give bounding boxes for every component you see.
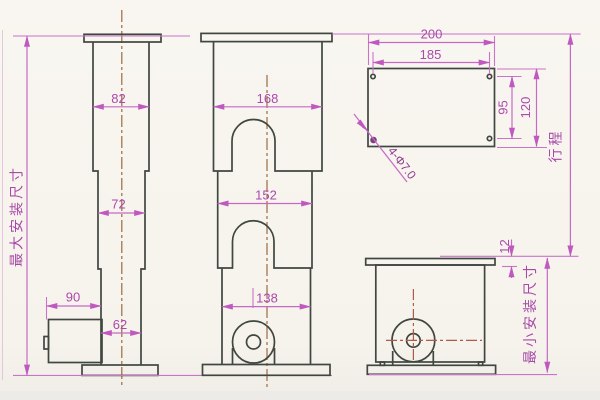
svg-text:行程: 行程 (548, 129, 564, 163)
svg-text:168: 168 (257, 91, 279, 106)
svg-text:最小安装尺寸: 最小安装尺寸 (522, 262, 538, 364)
svg-text:152: 152 (255, 188, 277, 203)
svg-text:72: 72 (111, 197, 125, 212)
svg-text:12: 12 (497, 239, 512, 253)
svg-text:95: 95 (496, 100, 511, 114)
svg-text:最大安装尺寸: 最大安装尺寸 (9, 165, 25, 267)
svg-text:62: 62 (113, 317, 127, 332)
svg-text:138: 138 (256, 291, 278, 306)
svg-text:90: 90 (66, 290, 80, 305)
svg-text:82: 82 (111, 91, 125, 106)
svg-text:120: 120 (518, 97, 533, 119)
svg-text:185: 185 (420, 47, 442, 62)
svg-text:200: 200 (421, 27, 443, 42)
